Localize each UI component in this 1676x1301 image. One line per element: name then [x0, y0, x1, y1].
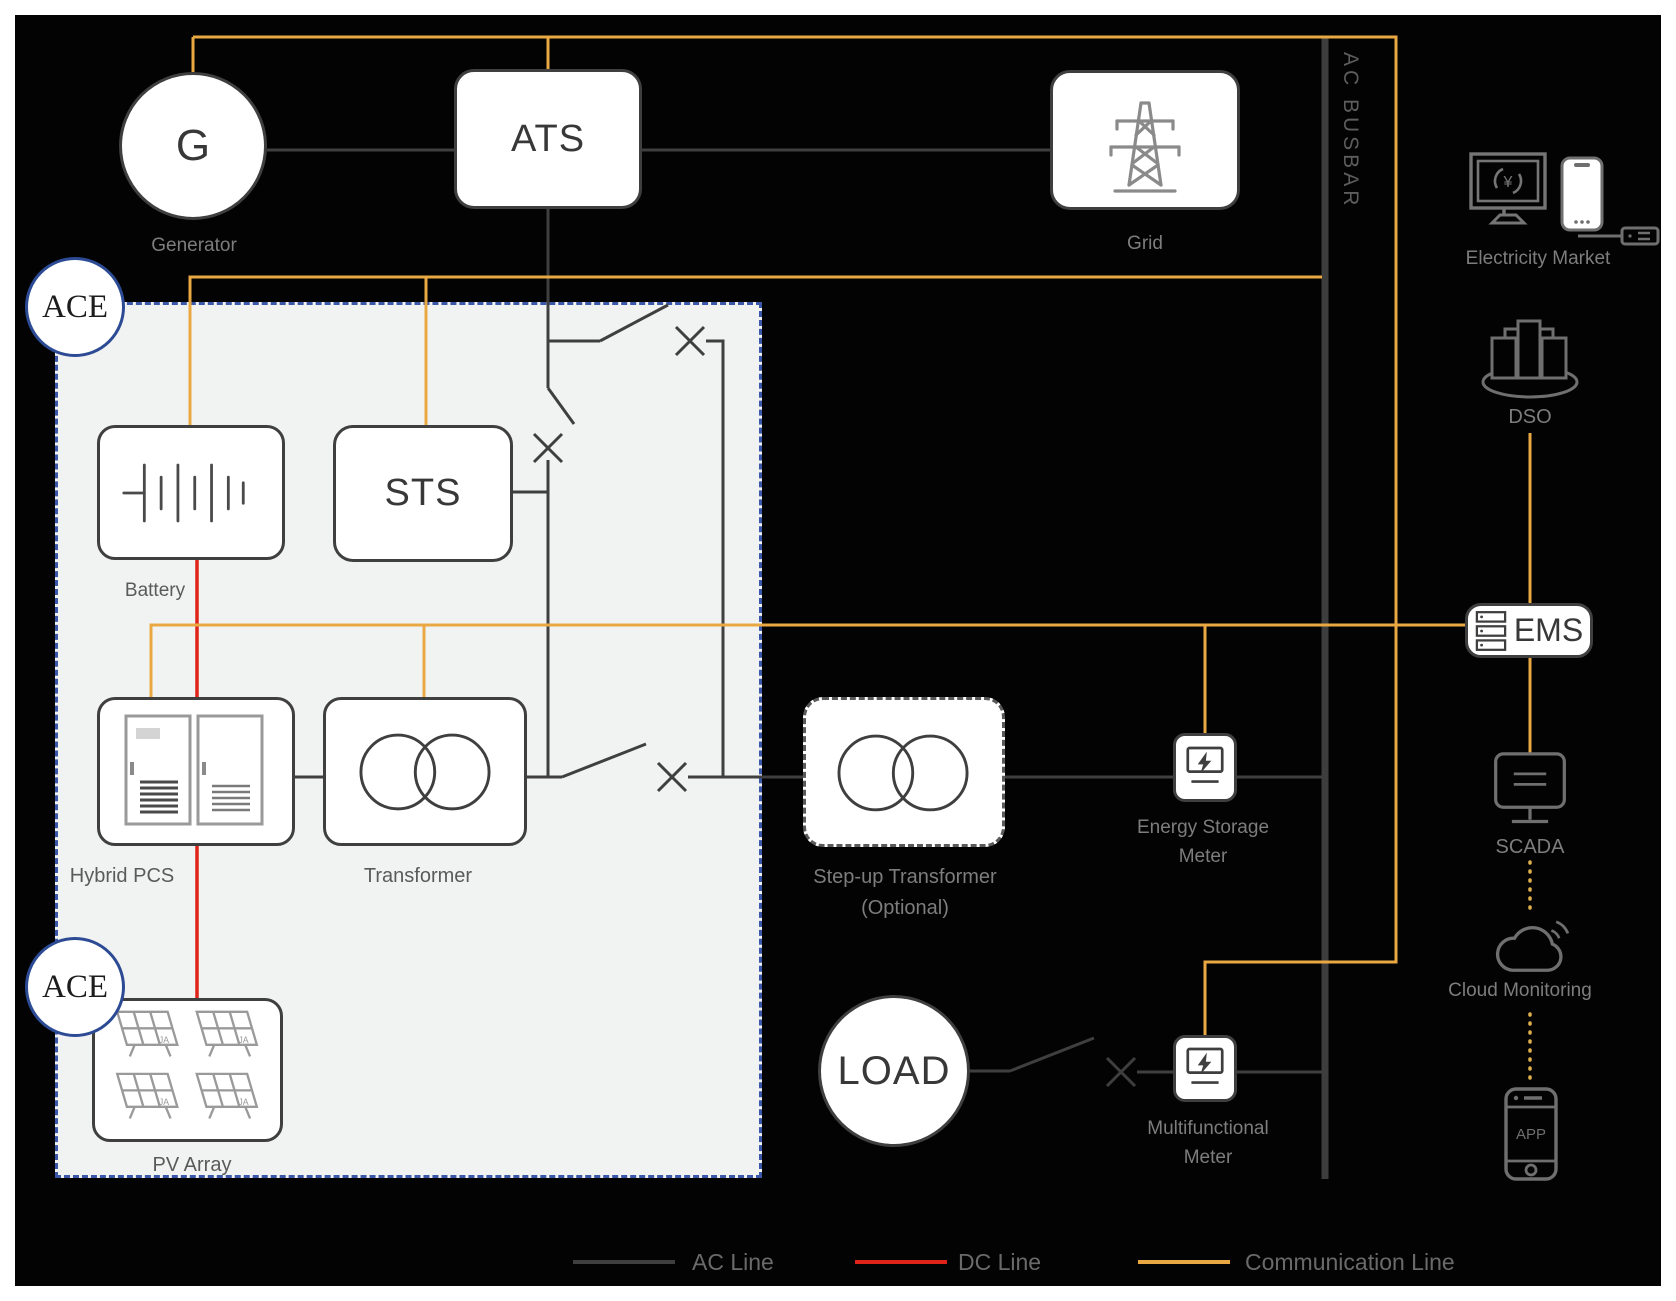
- hybrid-pcs-label: Hybrid PCS: [42, 863, 202, 890]
- load-node: LOAD: [818, 995, 970, 1147]
- scada-monitor-icon: [1491, 751, 1569, 833]
- hybrid-pcs-node: [97, 697, 295, 846]
- legend-dc-line-sample: [855, 1260, 947, 1264]
- ac-busbar-label: AC BUSBAR: [1338, 52, 1362, 209]
- pcs-cabinets-icon: [116, 710, 276, 834]
- dso-label: DSO: [1450, 404, 1610, 431]
- stepup-transformer-label: Step-up Transformer: [795, 864, 1015, 891]
- cloud-monitoring-label: Cloud Monitoring: [1420, 977, 1620, 1004]
- multifunctional-meter-icon: [1176, 1035, 1234, 1102]
- ems-node: EMS: [1465, 603, 1593, 658]
- svg-text:¥: ¥: [1503, 174, 1513, 191]
- stepup-coils-icon: [806, 697, 1002, 847]
- legend-ac-line-label: AC Line: [692, 1249, 774, 1276]
- multifunctional-meter-node: [1173, 1035, 1237, 1102]
- transformer-node: [323, 697, 527, 846]
- energy-storage-meter-label: Energy Storage Meter: [1103, 813, 1303, 871]
- legend-ac-line-sample: [573, 1260, 675, 1264]
- load-label: LOAD: [838, 1049, 951, 1094]
- grid-node: [1050, 70, 1240, 210]
- solar-panels-icon: JA: [105, 1006, 271, 1134]
- energy-meter-icon: [1176, 733, 1234, 802]
- generator-label: Generator: [104, 232, 284, 259]
- transmission-tower-icon: [1085, 81, 1205, 199]
- ace-badge-top: ACE: [25, 257, 125, 357]
- legend-comm-line-label: Communication Line: [1245, 1249, 1455, 1276]
- battery-node: [97, 425, 285, 560]
- electricity-market-label: Electricity Market: [1438, 245, 1638, 272]
- sts-node: STS: [333, 425, 513, 562]
- battery-cells-icon: [116, 451, 266, 535]
- dso-buildings-icon: [1478, 316, 1582, 408]
- market-monitor-icon: ¥: [1468, 151, 1548, 235]
- grid-label: Grid: [1065, 230, 1225, 257]
- ace-badge-bottom: ACE: [25, 937, 125, 1037]
- energy-storage-meter-node: [1173, 733, 1237, 802]
- pv-array-label: PV Array: [107, 1152, 277, 1179]
- app-label: APP: [1504, 1121, 1558, 1148]
- microgrid-diagram: G Generator ATS Grid AC BUSBAR ACE ACE: [0, 0, 1676, 1301]
- battery-label: Battery: [95, 577, 215, 604]
- sts-label: STS: [385, 472, 462, 515]
- legend-comm-line-sample: [1138, 1260, 1230, 1264]
- generator-symbol: G: [176, 121, 210, 171]
- ats-label: ATS: [511, 118, 585, 161]
- transformer-coils-icon: [326, 697, 524, 846]
- scada-label: SCADA: [1450, 834, 1610, 861]
- multifunctional-meter-label: Multifunctional Meter: [1108, 1114, 1308, 1172]
- pv-array-node: JA: [92, 998, 283, 1142]
- stepup-transformer-sublabel: (Optional): [795, 895, 1015, 922]
- stepup-transformer-node: [803, 697, 1005, 847]
- ems-server-icon: [1475, 610, 1507, 652]
- transformer-label: Transformer: [338, 863, 498, 890]
- market-dongle-icon: [1578, 226, 1662, 246]
- ems-label: EMS: [1514, 612, 1583, 649]
- cloud-monitoring-icon: [1488, 914, 1576, 978]
- ats-node: ATS: [454, 69, 642, 209]
- market-phone-icon: [1560, 156, 1604, 232]
- legend-dc-line-label: DC Line: [958, 1249, 1041, 1276]
- generator-node: G: [119, 72, 267, 220]
